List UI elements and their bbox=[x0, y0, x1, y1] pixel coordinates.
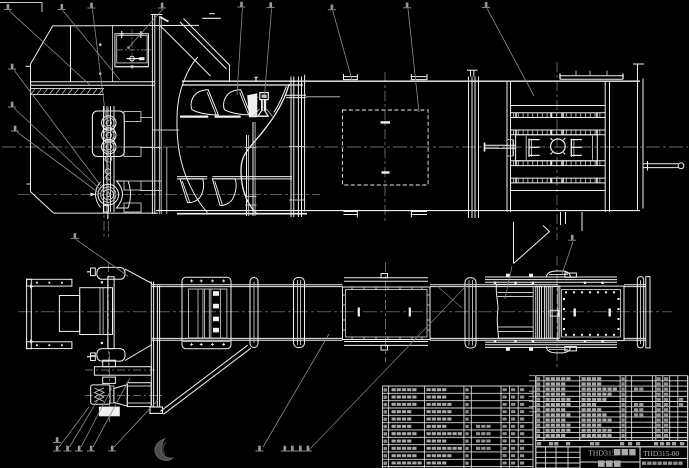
svg-text:THD315: THD315 bbox=[588, 449, 616, 458]
svg-text:THD315-00: THD315-00 bbox=[643, 449, 679, 458]
